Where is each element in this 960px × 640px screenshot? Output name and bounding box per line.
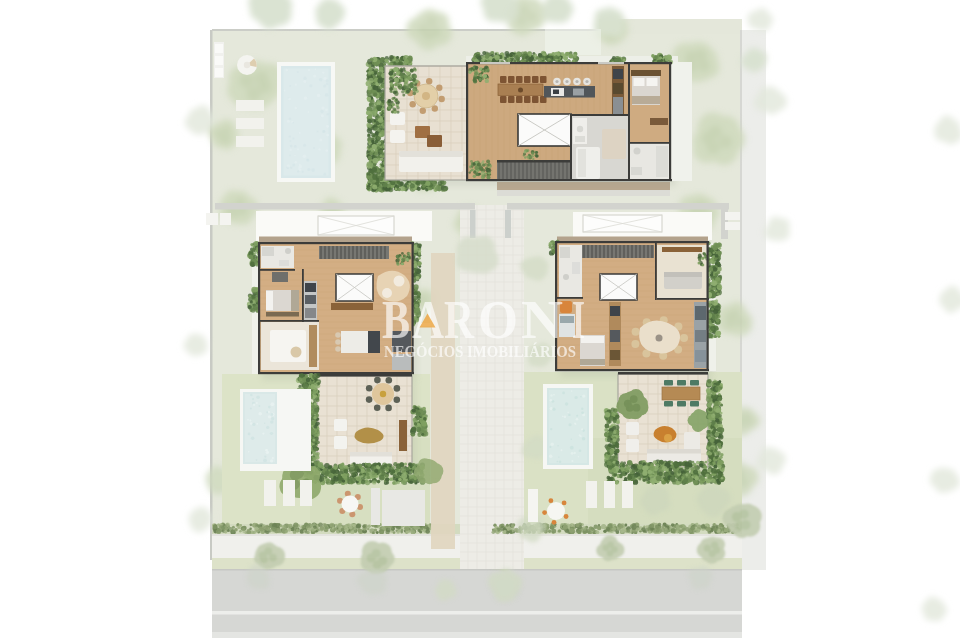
- svg-text:NEGÓCIOS IMOBILIÁRIOS: NEGÓCIOS IMOBILIÁRIOS: [384, 341, 576, 361]
